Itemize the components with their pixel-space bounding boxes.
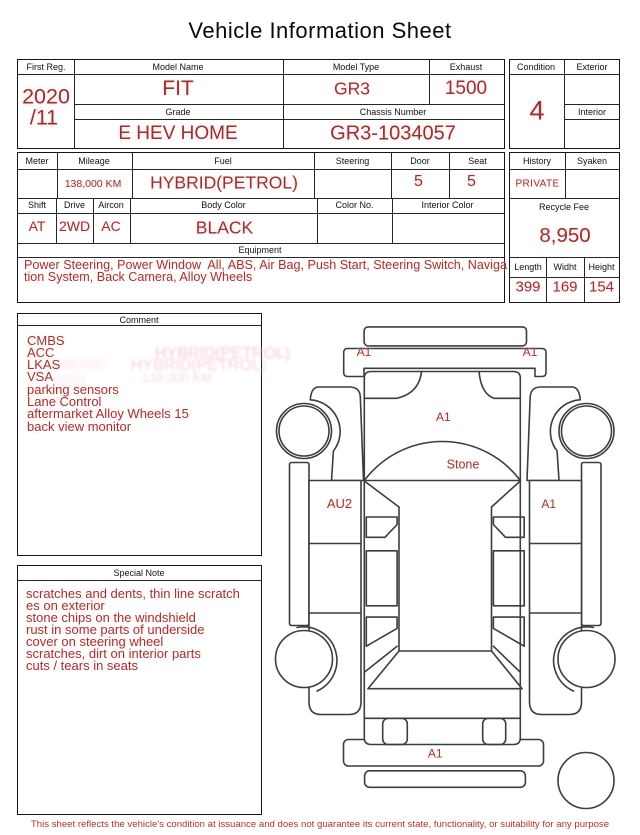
svg-text:A1: A1 [523,345,538,359]
svg-text:A1: A1 [428,747,443,761]
svg-text:Stone: Stone [447,458,480,472]
svg-text:A1: A1 [436,410,451,424]
svg-text:A1: A1 [357,345,372,359]
svg-text:AU2: AU2 [327,496,352,511]
svg-text:A1: A1 [541,497,556,511]
